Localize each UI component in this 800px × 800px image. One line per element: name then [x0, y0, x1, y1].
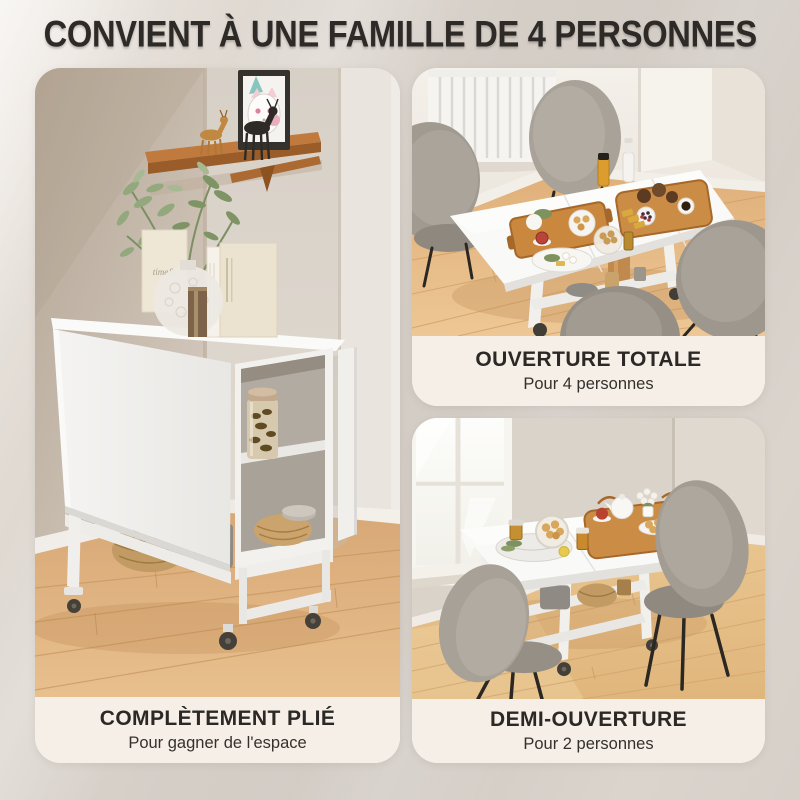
caption-panel: DEMI-OUVERTURE Pour 2 personnes [412, 699, 765, 763]
caption-panel: COMPLÈTEMENT PLIÉ Pour gagner de l'espac… [35, 697, 400, 763]
beer-glass [598, 153, 609, 186]
half-open-table-illustration [412, 418, 765, 699]
honey-jar [576, 528, 589, 550]
panel-subcaption: Pour 2 personnes [523, 735, 653, 754]
panel-caption: DEMI-OUVERTURE [490, 708, 687, 731]
open-table-photo [412, 68, 765, 336]
panel-subcaption: Pour 4 personnes [523, 375, 653, 394]
caption-panel: OUVERTURE TOTALE Pour 4 personnes [412, 336, 765, 406]
panel-folded-card: time& [35, 68, 400, 763]
half-open-table-photo [412, 418, 765, 699]
open-table-illustration [412, 68, 765, 336]
brass-vase [188, 287, 207, 337]
panel-subcaption: Pour gagner de l'espace [128, 734, 306, 753]
folded-table-photo: time& [35, 68, 400, 697]
panel-caption: OUVERTURE TOTALE [475, 348, 701, 371]
panel-caption: COMPLÈTEMENT PLIÉ [100, 707, 335, 730]
page-title: CONVIENT À UNE FAMILLE DE 4 PERSONNES [0, 0, 800, 66]
storage-jar [247, 388, 278, 460]
panel-half-open-card: DEMI-OUVERTURE Pour 2 personnes [412, 418, 765, 763]
product-infographic: CONVIENT À UNE FAMILLE DE 4 PERSONNES [0, 0, 800, 800]
panel-fully-open-card: OUVERTURE TOTALE Pour 4 personnes [412, 68, 765, 406]
folded-table-illustration: time& [35, 68, 400, 697]
